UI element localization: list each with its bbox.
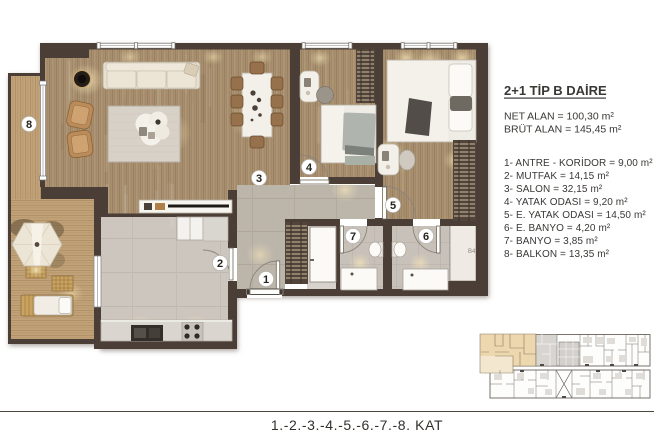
svg-text:1: 1 <box>263 274 269 286</box>
svg-text:4: 4 <box>306 162 313 174</box>
svg-text:BRÜT ALAN = 145,45 m²: BRÜT ALAN = 145,45 m² <box>504 124 622 136</box>
svg-text:6: 6 <box>423 231 429 243</box>
svg-text:2: 2 <box>217 258 223 270</box>
svg-text:2- MUTFAK = 14,15 m²: 2- MUTFAK = 14,15 m² <box>504 171 610 182</box>
svg-text:B4: B4 <box>468 249 476 255</box>
svg-text:7- BANYO = 3,85 m²: 7- BANYO = 3,85 m² <box>504 236 598 247</box>
svg-text:8- BALKON = 13,35 m²: 8- BALKON = 13,35 m² <box>504 249 610 260</box>
svg-text:5- E. YATAK ODASI = 14,50 m²: 5- E. YATAK ODASI = 14,50 m² <box>504 210 646 221</box>
svg-text:3- SALON = 32,15 m²: 3- SALON = 32,15 m² <box>504 184 603 195</box>
svg-text:8: 8 <box>26 119 32 131</box>
svg-text:5: 5 <box>390 200 396 212</box>
svg-text:2+1 TİP B DAİRE: 2+1 TİP B DAİRE <box>504 83 607 98</box>
svg-text:4- YATAK ODASI = 9,20 m²: 4- YATAK ODASI = 9,20 m² <box>504 197 628 208</box>
svg-text:6- E. BANYO = 4,20 m²: 6- E. BANYO = 4,20 m² <box>504 223 611 234</box>
svg-text:1.-2.-3.-4.-5.-6.-7.-8. KAT: 1.-2.-3.-4.-5.-6.-7.-8. KAT <box>271 417 443 433</box>
svg-text:7: 7 <box>350 231 356 243</box>
svg-text:1- ANTRE - KORİDOR = 9,00 m²: 1- ANTRE - KORİDOR = 9,00 m² <box>504 156 653 169</box>
svg-text:NET ALAN = 100,30 m²: NET ALAN = 100,30 m² <box>504 111 614 123</box>
svg-text:3: 3 <box>256 173 262 185</box>
